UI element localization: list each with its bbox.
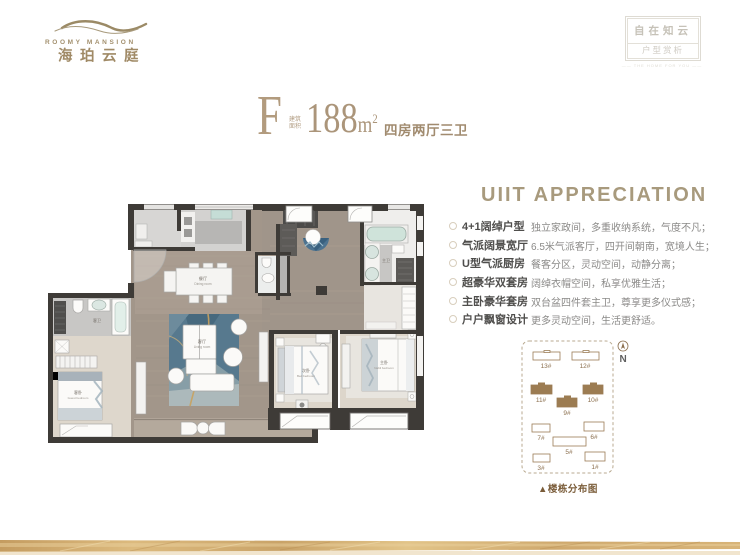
svg-text:1#: 1#: [591, 464, 599, 471]
svg-text:13#: 13#: [541, 363, 552, 370]
svg-text:5#: 5#: [565, 449, 573, 456]
svg-text:主卧: 主卧: [380, 359, 388, 365]
svg-text:客卧: 客卧: [74, 389, 82, 395]
svg-text:ROOMY MANSION: ROOMY MANSION: [45, 39, 136, 46]
svg-text:Dining room: Dining room: [194, 282, 212, 286]
svg-text:客卫: 客卫: [93, 317, 101, 323]
svg-text:主卫: 主卫: [382, 257, 390, 263]
svg-text:Bed bedroom: Bed bedroom: [297, 374, 316, 378]
svg-text:3#: 3#: [537, 465, 545, 472]
svg-text:10#: 10#: [588, 397, 599, 404]
svg-text:海珀云庭: 海珀云庭: [58, 47, 146, 65]
svg-text:Nabil bedroom: Nabil bedroom: [374, 366, 394, 370]
svg-text:N: N: [620, 354, 627, 365]
svg-text:Living room: Living room: [194, 345, 211, 349]
svg-text:次卧: 次卧: [302, 367, 310, 373]
svg-text:11#: 11#: [536, 397, 547, 404]
svg-text:6#: 6#: [590, 434, 598, 441]
svg-text:9#: 9#: [563, 410, 571, 417]
svg-text:餐厅: 餐厅: [199, 275, 207, 282]
svg-text:客厅: 客厅: [198, 338, 206, 345]
svg-text:12#: 12#: [580, 363, 591, 370]
svg-text:Guest bedroom: Guest bedroom: [68, 396, 89, 400]
svg-text:7#: 7#: [537, 435, 545, 442]
